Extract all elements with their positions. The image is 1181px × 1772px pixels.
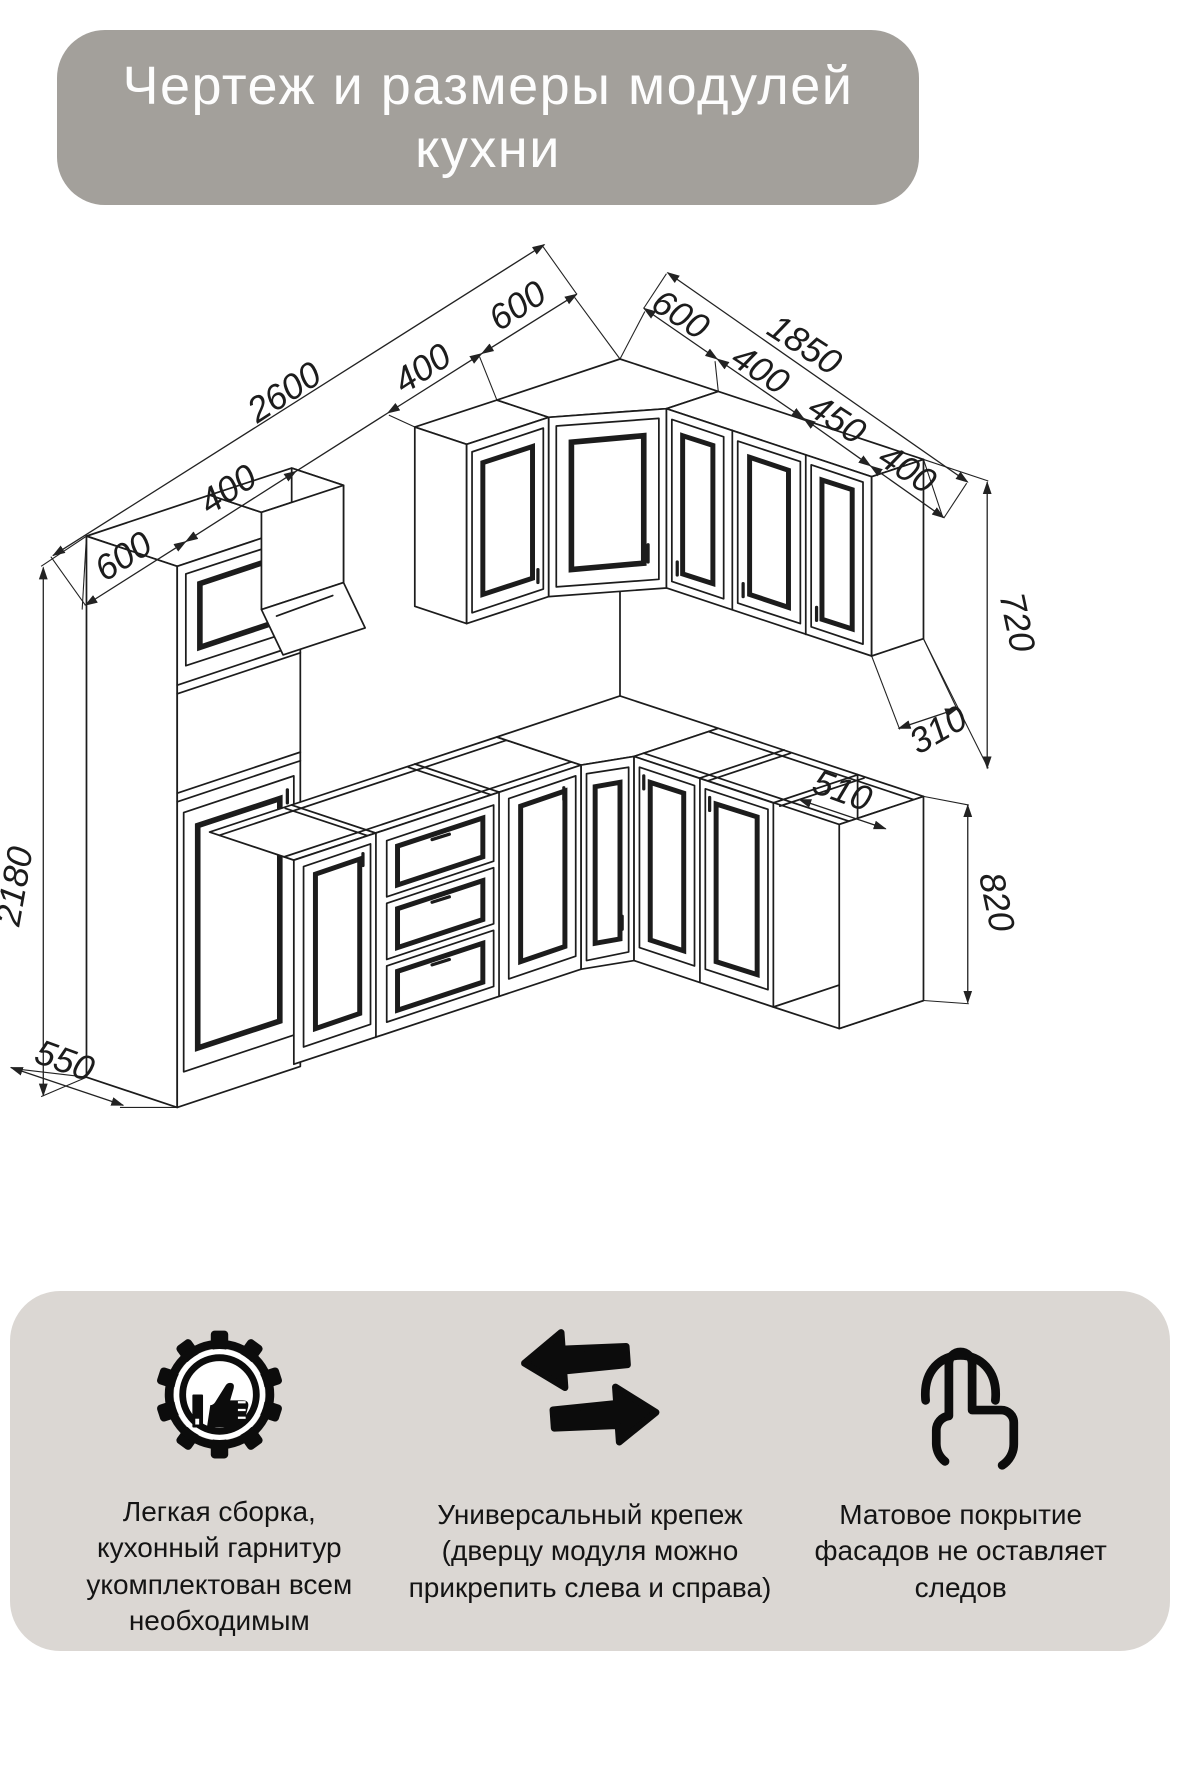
- drawer-stack: [387, 805, 494, 1022]
- left-wall-cabinet: [415, 400, 549, 624]
- feature-text-easy-assembly: Легкая сборка, кухонный гарнитур укомпле…: [86, 1494, 352, 1640]
- feature-easy-assembly: Легкая сборка, кухонный гарнитур укомпле…: [34, 1317, 405, 1651]
- dim-tall-cab-height: 2180: [0, 843, 41, 929]
- dim-wall-cab-height: 720: [992, 589, 1044, 656]
- dim-base-cab-height: 820: [971, 869, 1023, 936]
- right-wall-cabinets: [666, 391, 923, 656]
- title-block: Чертеж и размеры модулей кухни: [57, 30, 919, 205]
- dim-left-seg-4: 600: [482, 273, 554, 339]
- features-panel: Легкая сборка, кухонный гарнитур укомпле…: [10, 1291, 1170, 1651]
- kitchen-drawing: 600 400 2600 400 600 600 1850 400 450 40…: [0, 215, 1181, 1175]
- feature-text-universal-mount: Универсальный крепеж (дверцу модуля можн…: [409, 1497, 772, 1606]
- gear-thumbs-up-icon: [142, 1317, 297, 1472]
- infographic-page: Чертеж и размеры модулей кухни: [0, 0, 1181, 1772]
- touch-finger-icon: [883, 1317, 1038, 1475]
- dim-left-total: 2600: [239, 354, 328, 431]
- feature-text-matte-finish: Матовое покрытие фасадов не оставляет сл…: [814, 1497, 1106, 1606]
- dim-left-seg-3: 400: [386, 335, 458, 401]
- base-cabinets-right: [634, 728, 923, 1028]
- feature-matte-finish: Матовое покрытие фасадов не оставляет сл…: [775, 1317, 1146, 1651]
- swap-arrows-icon: [508, 1317, 673, 1475]
- feature-universal-mount: Универсальный крепеж (дверцу модуля можн…: [405, 1317, 776, 1651]
- dim-wall-cab-depth: 310: [902, 698, 974, 762]
- page-title: Чертеж и размеры модулей кухни: [123, 55, 854, 180]
